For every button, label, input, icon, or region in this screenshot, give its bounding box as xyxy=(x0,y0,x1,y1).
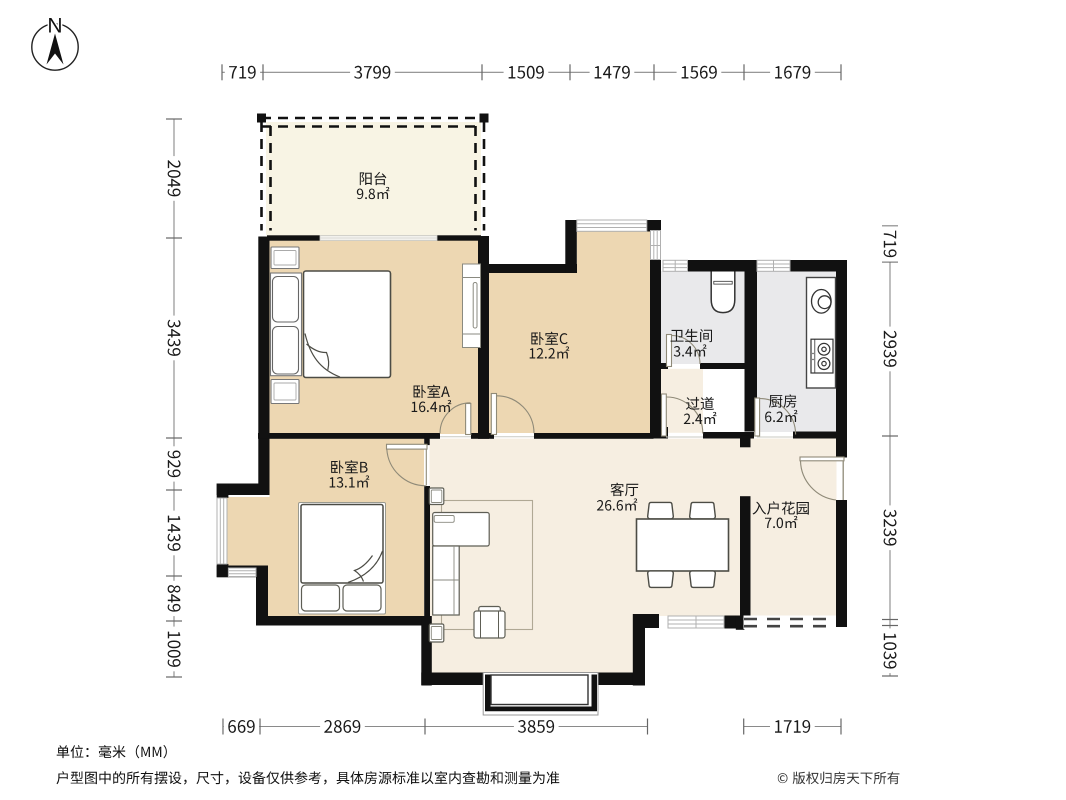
svg-text:N: N xyxy=(47,15,62,38)
